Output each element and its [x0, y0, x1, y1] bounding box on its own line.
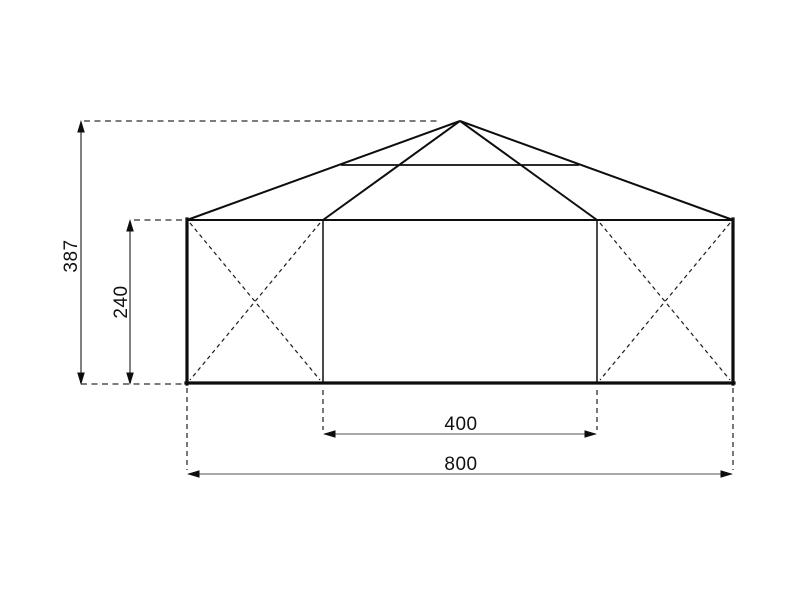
arrowhead-center-width-right	[585, 430, 598, 438]
roof-hip-inner-left	[323, 121, 460, 220]
arrowhead-total-height-top	[77, 120, 85, 133]
cross-braces	[190, 223, 730, 380]
dim-label-wall-height: 240	[111, 285, 132, 318]
elevation-drawing-canvas: 387 240 400 800	[0, 0, 800, 600]
arrowhead-total-width-left	[187, 470, 200, 478]
wall-structure	[186, 219, 734, 384]
arrowhead-wall-height-bottom	[126, 373, 134, 386]
roof-structure	[187, 121, 733, 220]
dim-label-center-width: 400	[444, 414, 477, 435]
pavilion-elevation-svg: 387 240 400 800	[0, 0, 800, 600]
arrowhead-total-height-bottom	[77, 373, 85, 386]
dimension-lines	[81, 123, 731, 474]
arrowhead-total-width-right	[721, 470, 734, 478]
dimension-labels: 387 240 400 800	[61, 239, 478, 475]
dimension-arrowheads	[77, 120, 733, 478]
arrowhead-center-width-left	[323, 430, 336, 438]
extension-lines	[81, 121, 733, 470]
roof-hip-outer-right	[460, 121, 733, 220]
arrowhead-wall-height-top	[126, 219, 134, 232]
roof-hip-outer-left	[187, 121, 460, 220]
dim-label-total-height: 387	[61, 239, 82, 272]
roof-hip-inner-right	[460, 121, 597, 220]
dim-label-total-width: 800	[444, 454, 477, 475]
